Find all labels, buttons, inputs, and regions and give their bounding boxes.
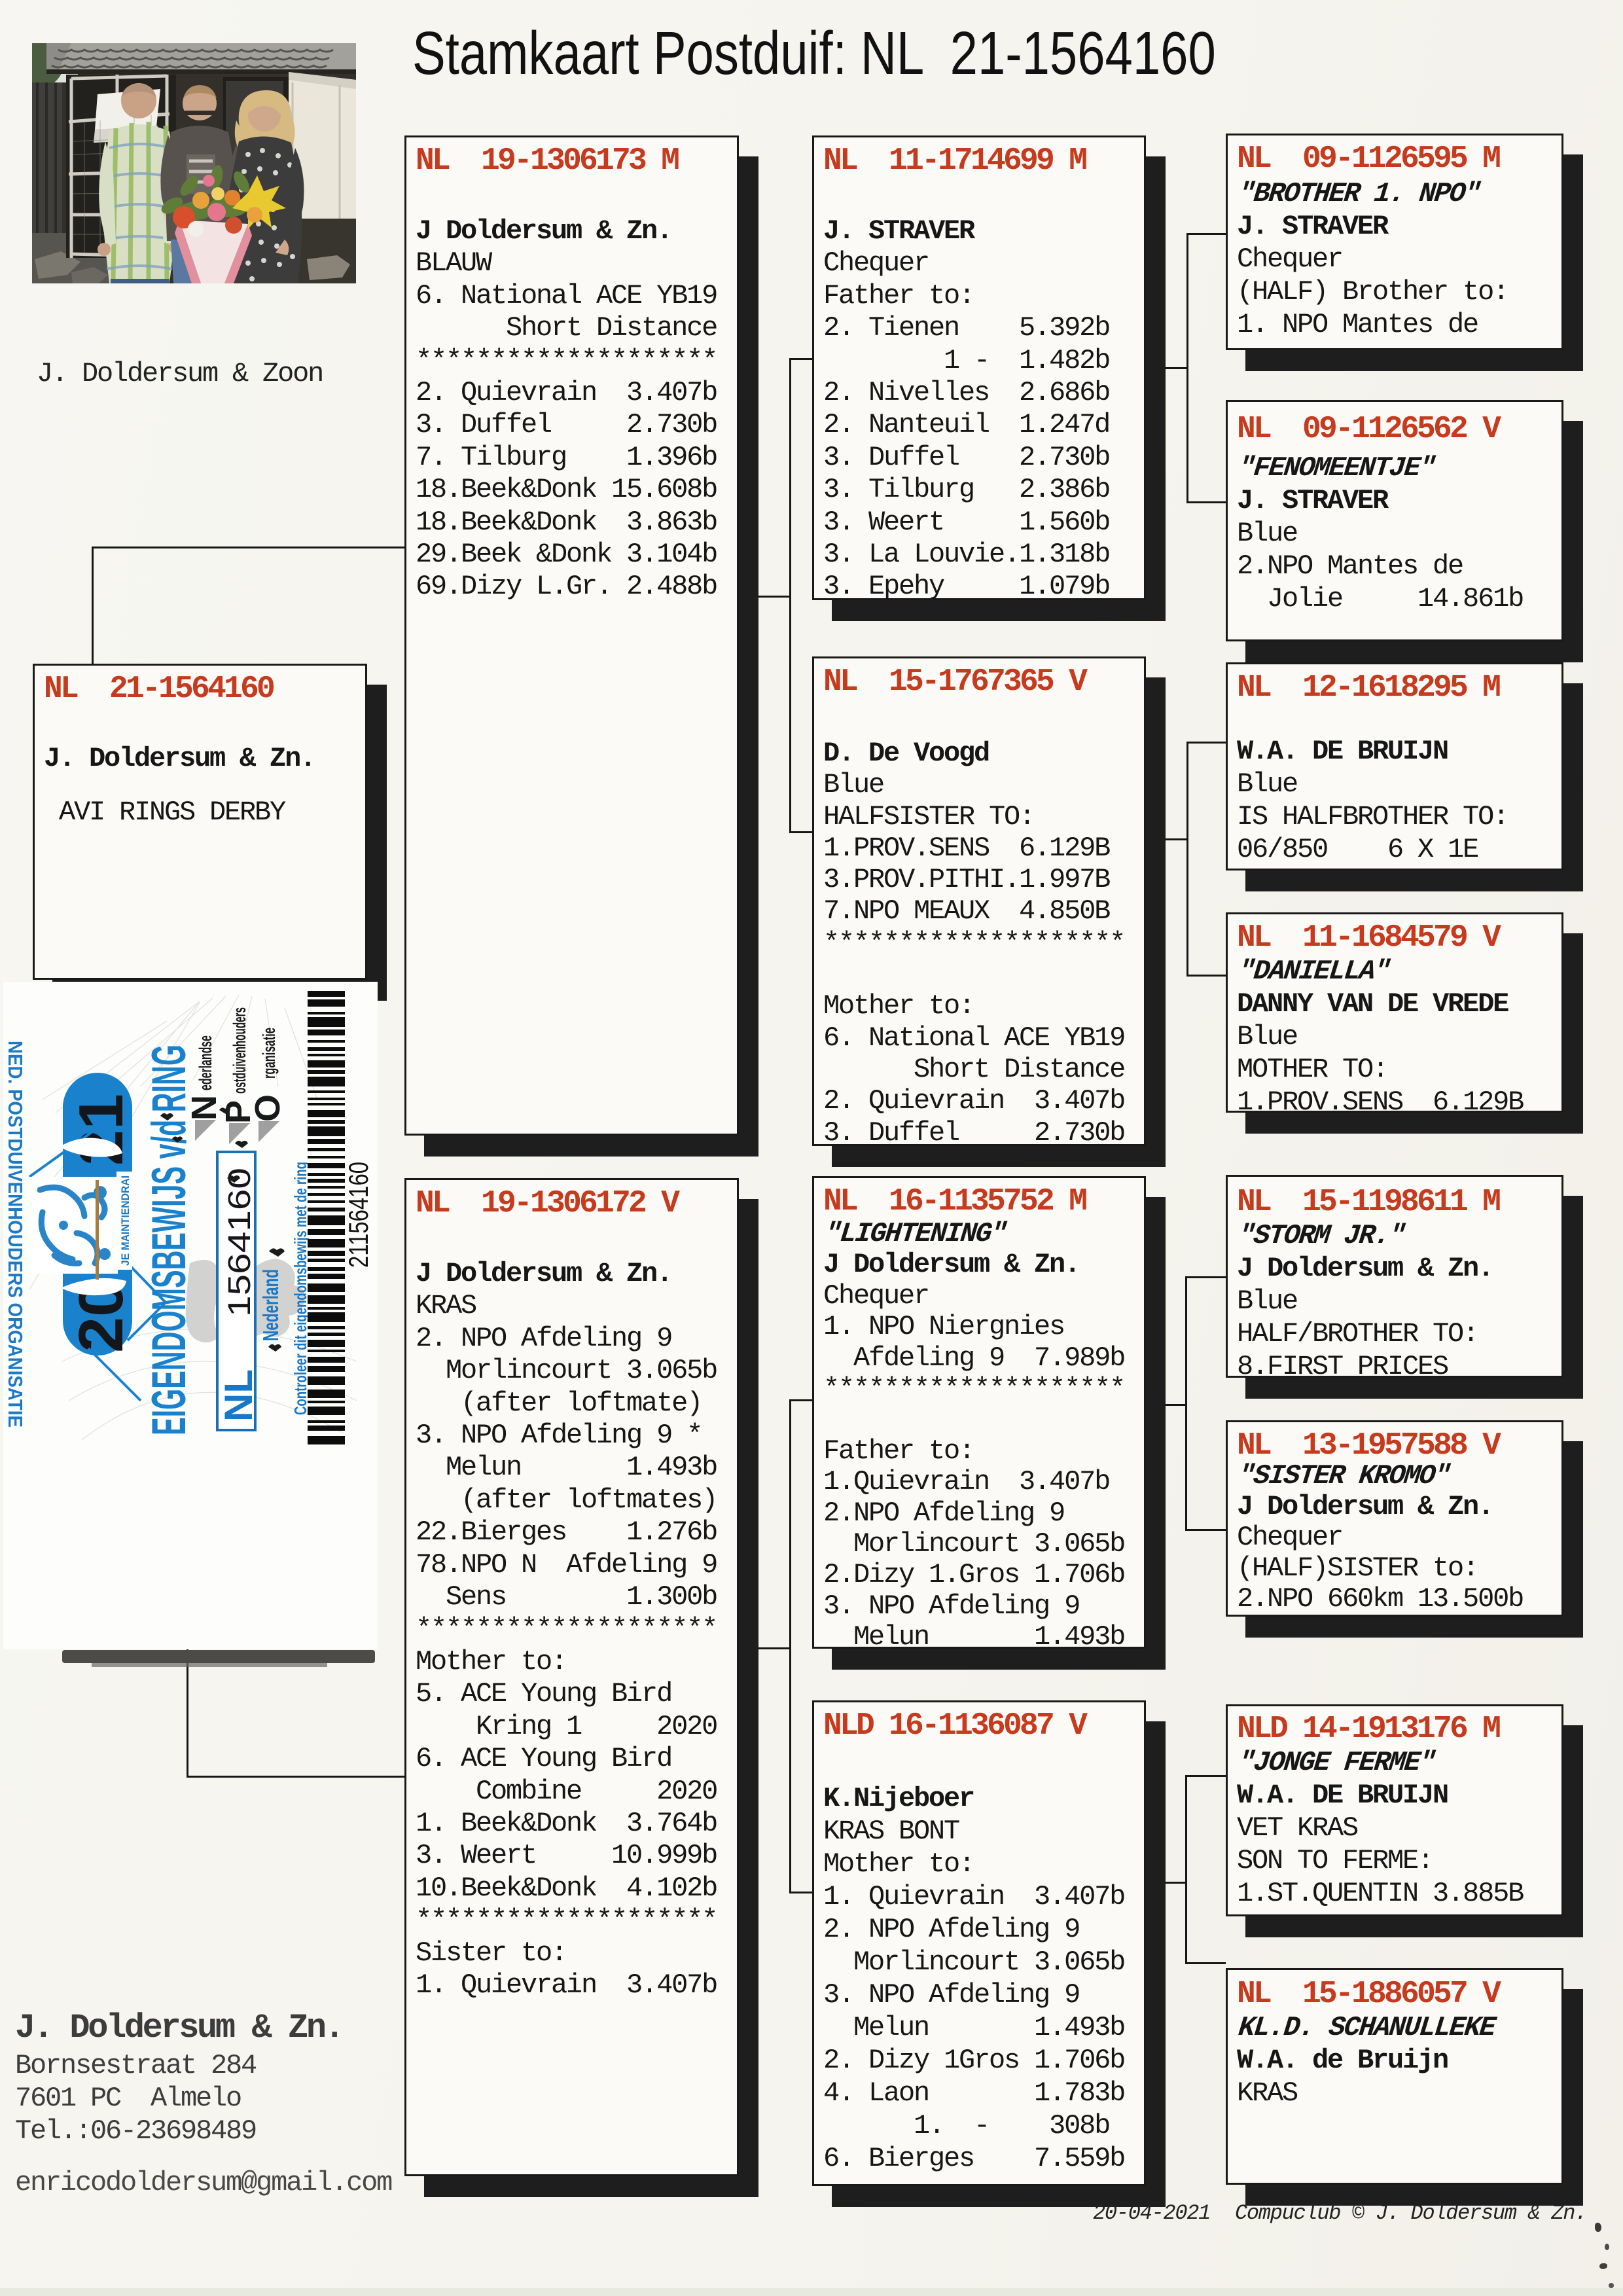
svg-text:211564160: 211564160 xyxy=(343,1162,374,1268)
svg-text:ostduivenhouders: ostduivenhouders xyxy=(230,1007,249,1094)
svg-text:Controleer dit eigendomsbewijs: Controleer dit eigendomsbewijs met de ri… xyxy=(291,1162,310,1415)
svg-text:N: N xyxy=(185,1095,224,1121)
svg-text:O: O xyxy=(248,1094,287,1122)
svg-text:JE MAINTIENDRAI: JE MAINTIENDRAI xyxy=(119,1175,132,1266)
svg-text:ederlandse: ederlandse xyxy=(196,1035,215,1090)
svg-text:Nederland: Nederland xyxy=(259,1269,283,1341)
svg-text:NED. POSTDUIVENHOUDERS ORGANIS: NED. POSTDUIVENHOUDERS ORGANISATIE xyxy=(4,1041,27,1427)
svg-text:rganisatie: rganisatie xyxy=(259,1028,279,1079)
svg-text:NL: NL xyxy=(217,1369,260,1422)
svg-text:1564160: 1564160 xyxy=(223,1168,257,1317)
